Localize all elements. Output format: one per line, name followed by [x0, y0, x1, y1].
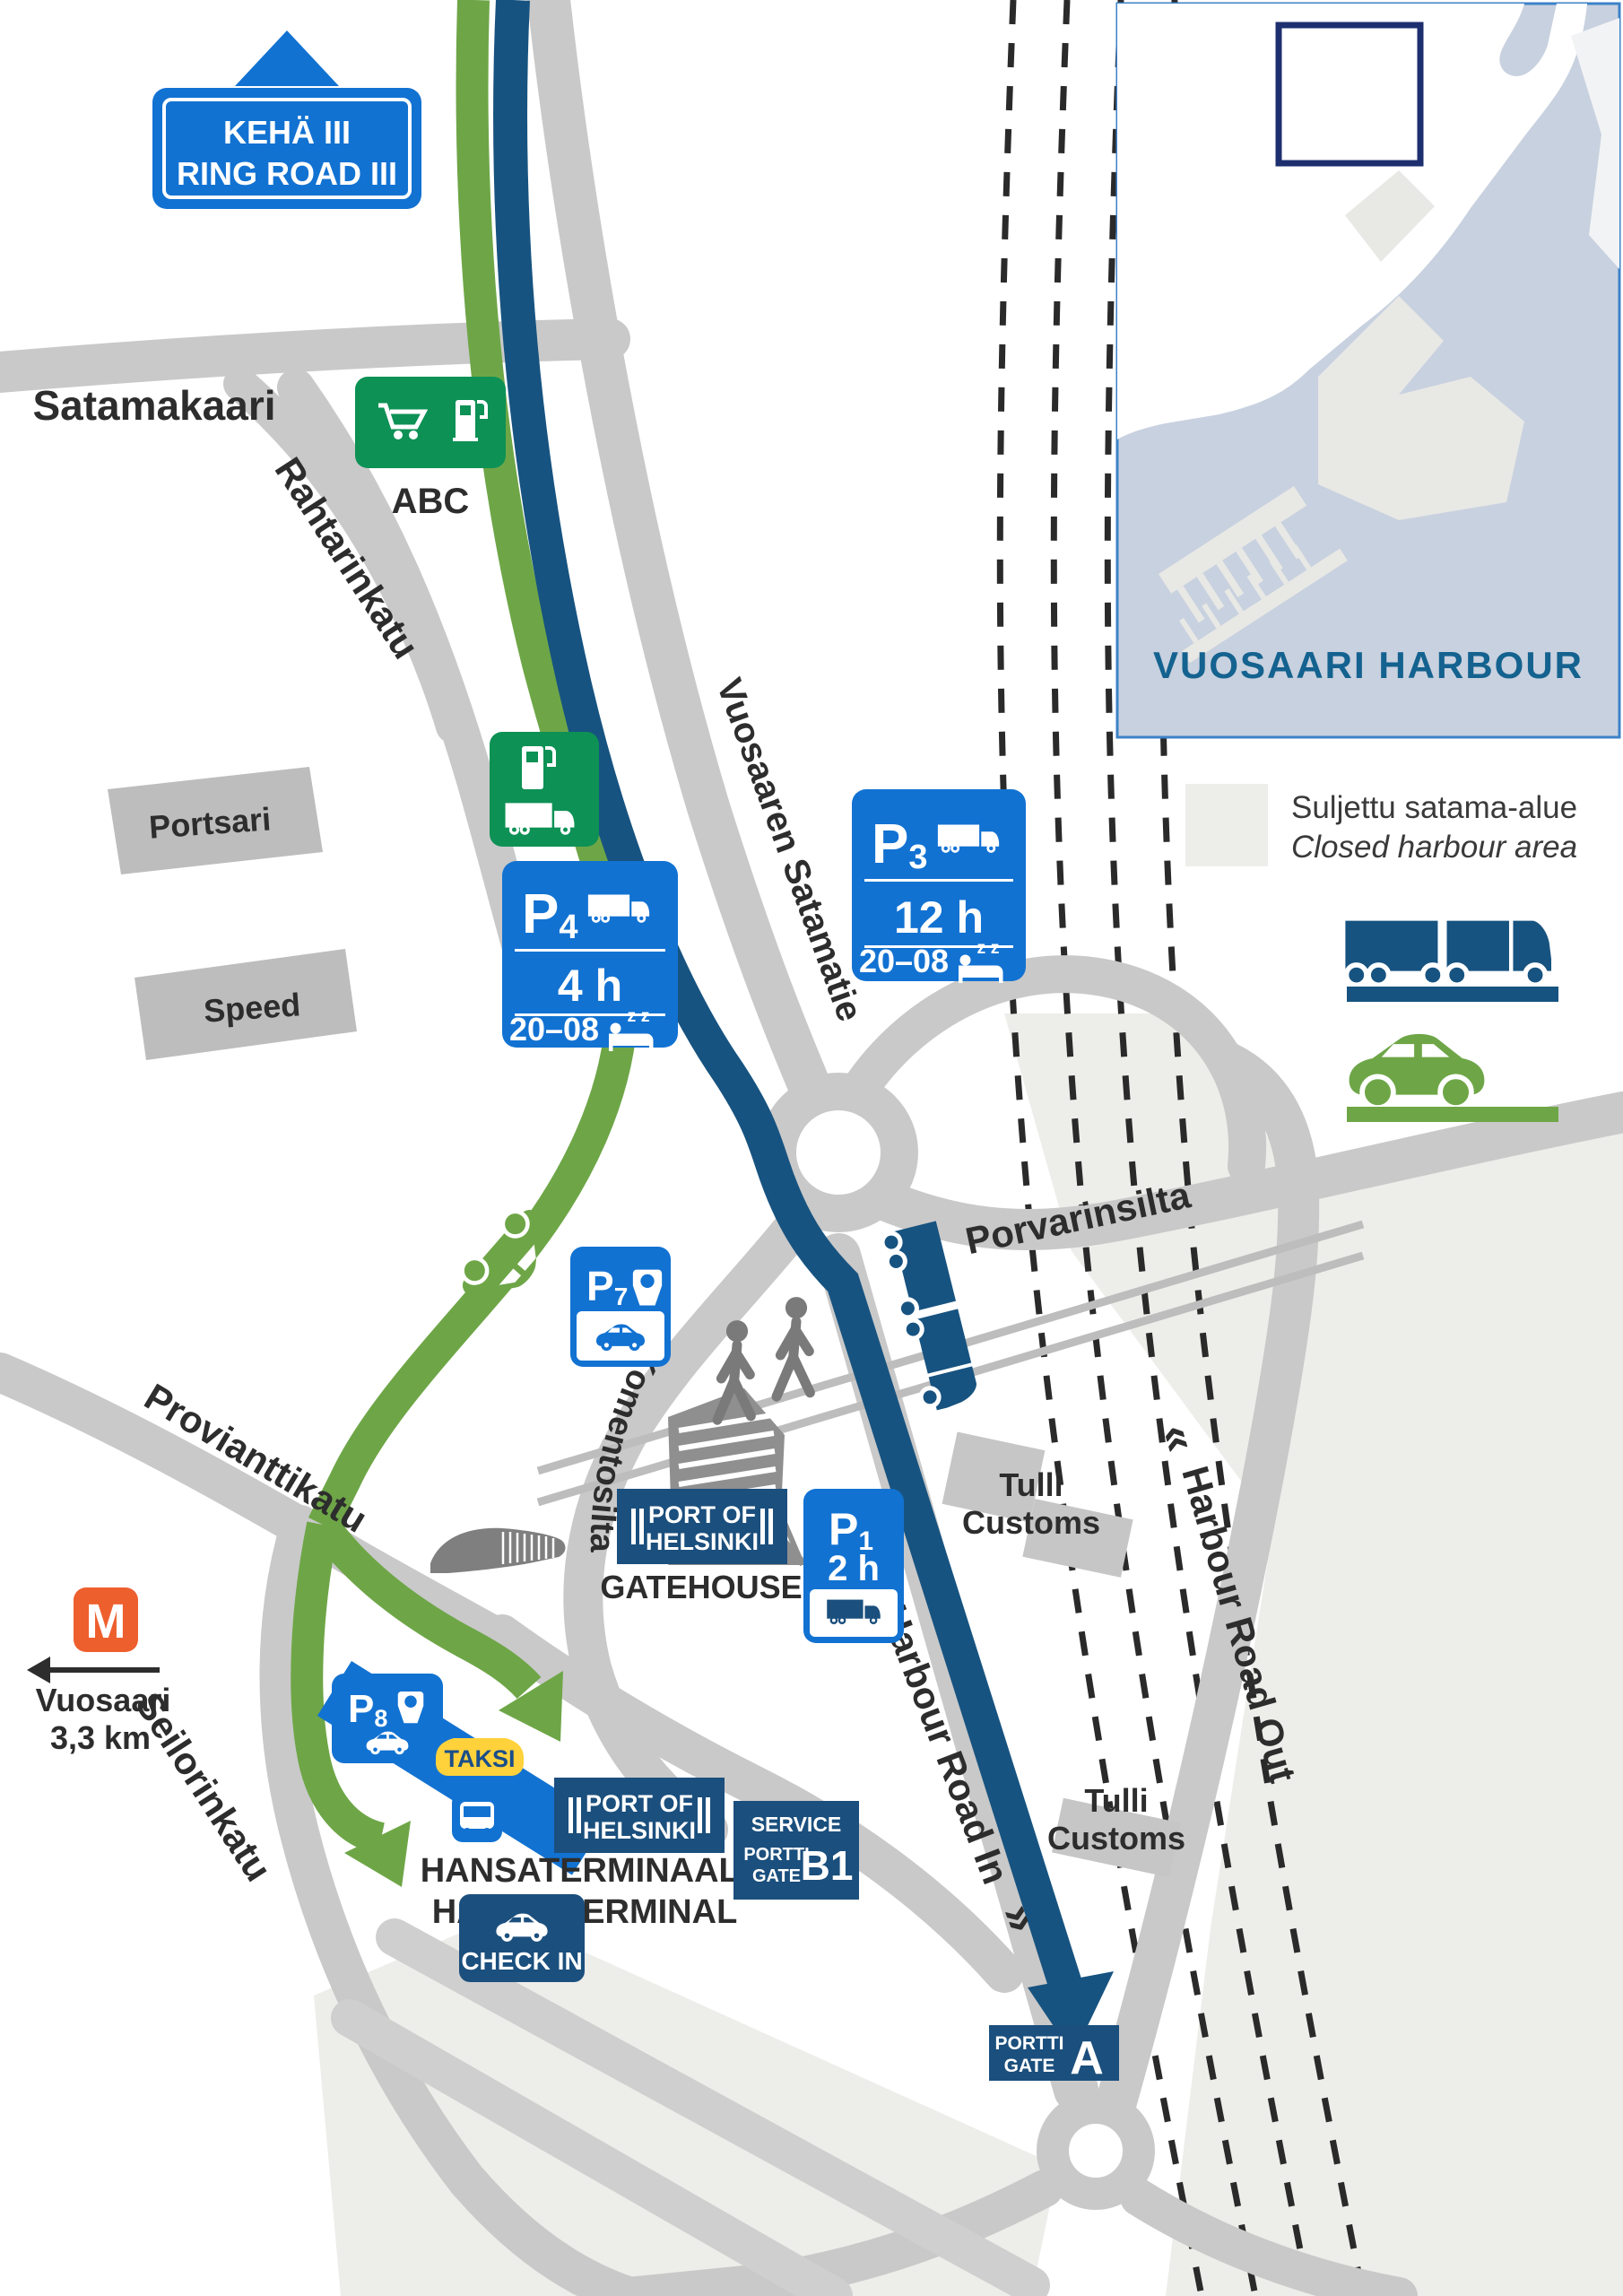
- svg-text:z z: z z: [977, 938, 1000, 958]
- up-arrow-icon: [235, 30, 339, 86]
- map-canvas: Satamakaari Rahtarinkatu Vuosaaren Satam…: [0, 0, 1623, 2296]
- ring-road-line2: RING ROAD III: [177, 155, 397, 192]
- label-hansaterminaali: HANSATERMINAALI: [421, 1852, 750, 1890]
- legend-closed-en: Closed harbour area: [1291, 830, 1577, 865]
- legend-truck-route-bar: [1347, 987, 1558, 1002]
- harbour-traffic-map: Satamakaari Rahtarinkatu Vuosaaren Satam…: [0, 0, 1623, 2296]
- label-gatehouse: GATEHOUSE: [600, 1569, 802, 1605]
- check-in-label: CHECK IN: [461, 1947, 582, 1975]
- label-speed: Speed: [203, 986, 302, 1029]
- gate-code: B1: [801, 1842, 854, 1889]
- parking-sign-p1: P1 2 h: [803, 1489, 904, 1643]
- port-of-helsinki-gatehouse-box: PORT OF HELSINKI: [617, 1489, 787, 1564]
- label-tulli-lower-2: Customs: [1047, 1820, 1185, 1857]
- truck-fuel-station-sign: [490, 732, 599, 847]
- label-tulli-upper-2: Customs: [962, 1504, 1100, 1541]
- gate-code: A: [1070, 2032, 1104, 2084]
- port-of-helsinki-line1: PORT OF: [648, 1501, 756, 1528]
- gate-a-sign: PORTTI GATE A: [989, 2025, 1119, 2084]
- inset-title: VUOSAARI HARBOUR: [1153, 644, 1584, 686]
- check-in-sign: CHECK IN: [459, 1894, 585, 1982]
- portti-label: PORTTI: [995, 2033, 1064, 2054]
- parking-sign-p8: P8: [332, 1674, 443, 1763]
- label-satamakaari: Satamakaari: [32, 382, 275, 429]
- service-gate-b1-sign: SERVICE PORTTI GATE B1: [733, 1801, 859, 1900]
- ring-road-sign: KEHÄ III RING ROAD III: [152, 30, 421, 209]
- label-tulli-lower-1: Tulli: [1084, 1782, 1148, 1819]
- roundabout-gate-a: [1053, 2108, 1139, 2194]
- port-of-helsinki-terminal-box: PORT OF HELSINKI: [554, 1778, 725, 1853]
- metro-distance: 3,3 km: [50, 1719, 151, 1756]
- legend-closed-area-swatch: [1185, 784, 1268, 866]
- service-label: SERVICE: [751, 1813, 842, 1836]
- metro-destination: Vuosaari: [36, 1682, 171, 1718]
- parking-sign-p4: P4 4 h 20–08 z z: [502, 861, 678, 1051]
- parking-sign-p7: P7: [570, 1247, 671, 1367]
- bus-line-number: 90: [510, 1797, 558, 1845]
- parking-sign-p3: P3 12 h 20–08 z z: [852, 789, 1026, 983]
- metro-symbol: M: [86, 1595, 126, 1648]
- legend-car-route-bar: [1347, 1107, 1558, 1122]
- port-of-helsinki-line2: HELSINKI: [583, 1817, 696, 1844]
- p1-duration: 2 h: [828, 1549, 880, 1588]
- abc-label: ABC: [392, 482, 470, 521]
- ring-road-line1: KEHÄ III: [223, 114, 351, 151]
- p4-night-hours: 20–08: [509, 1011, 599, 1048]
- legend-truck-route-icon: [1345, 921, 1551, 986]
- port-of-helsinki-line1: PORT OF: [586, 1790, 693, 1817]
- metro-station: M Vuosaari 3,3 km: [27, 1587, 170, 1756]
- gate-label: GATE: [1004, 2056, 1055, 2076]
- label-tulli-upper-1: Tulli: [999, 1466, 1063, 1503]
- gate-label: GATE: [752, 1866, 801, 1886]
- svg-text:z z: z z: [628, 1006, 650, 1026]
- inset-overview-map: VUOSAARI HARBOUR: [1117, 4, 1619, 737]
- legend-closed-fi: Suljettu satama-alue: [1291, 790, 1577, 825]
- taksi-badge: TAKSI: [436, 1738, 524, 1776]
- legend-car-route-icon: [1350, 1034, 1485, 1108]
- building-curved-terminal: [430, 1528, 565, 1573]
- p4-duration: 4 h: [558, 961, 622, 1011]
- taksi-label: TAKSI: [445, 1745, 516, 1772]
- p3-night-hours: 20–08: [859, 943, 949, 979]
- p3-duration: 12 h: [894, 892, 984, 943]
- port-of-helsinki-line2: HELSINKI: [646, 1528, 759, 1555]
